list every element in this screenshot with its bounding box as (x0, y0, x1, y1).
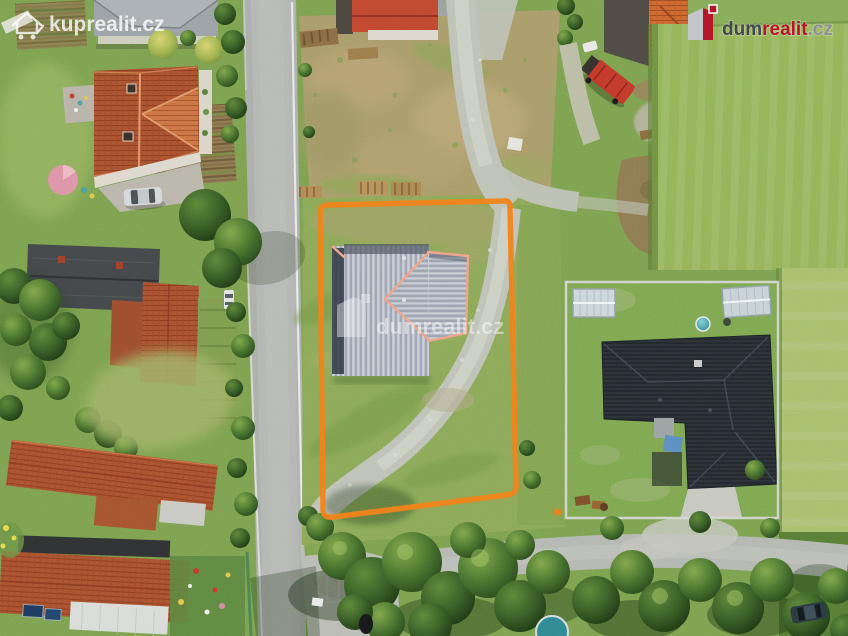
dumrealit-text: dumrealit.cz (722, 19, 833, 40)
aerial-scene: kuprealit.cz dumrealit.cz dumrealit.cz (0, 0, 848, 636)
kuprealit-text: kuprealit.cz (49, 13, 165, 36)
dumrealit-center-text: dumrealit.cz (376, 314, 504, 339)
aerial-photo: kuprealit.cz dumrealit.cz dumrealit.cz (0, 0, 848, 636)
